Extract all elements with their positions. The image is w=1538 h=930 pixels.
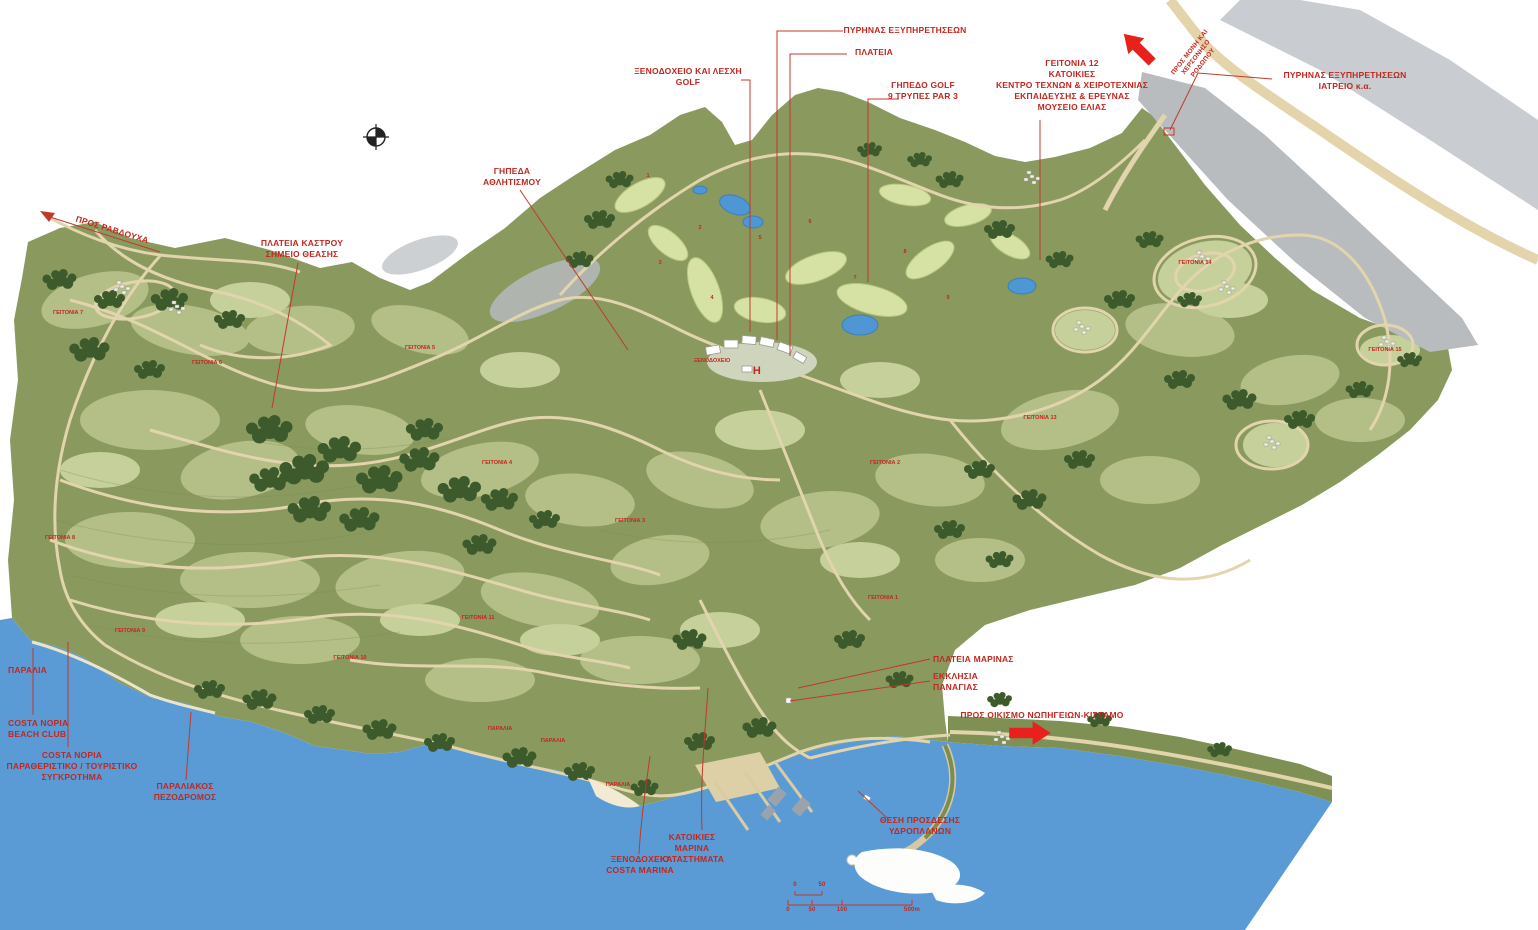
golf-hole-6: 6 bbox=[808, 219, 811, 226]
label-geitonia-3: ΓΕΙΤΟΝΙΑ 3 bbox=[615, 518, 645, 525]
label-geitonia-7: ΓΕΙΤΟΝΙΑ 7 bbox=[53, 310, 83, 317]
scale-upper-0: 0 bbox=[793, 882, 797, 890]
label-paralia-west: ΠΑΡΑΛΙΑ bbox=[8, 665, 47, 676]
masterplan-map: ΠΡΟΣ ΡΑΒΔΟΥΧΑ ΠΛΑΤΕΙΑ ΚΑΣΤΡΟΥ ΣΗΜΕΙΟ ΘΕΑ… bbox=[0, 0, 1538, 930]
label-thesi-prosdesis: ΘΕΣΗ ΠΡΟΣΔΕΣΗΣ ΥΔΡΟΠΛΑΝΩΝ bbox=[880, 815, 960, 837]
label-gipedo-golf-9: ΓΗΠΕΔΟ GOLF 9 ΤΡΥΠΕΣ PAR 3 bbox=[888, 80, 958, 102]
map-svg bbox=[0, 0, 1538, 930]
scale-lower-50: 50 bbox=[808, 907, 815, 915]
scale-lower-0: 0 bbox=[786, 907, 790, 915]
label-geitonia-13: ΓΕΙΤΟΝΙΑ 13 bbox=[1023, 415, 1056, 422]
label-hotel-central: ΞΕΝΟΔΟΧΕΙΟ bbox=[694, 358, 731, 365]
label-geitonia-2: ΓΕΙΤΟΝΙΑ 2 bbox=[870, 460, 900, 467]
label-geitonia-4: ΓΕΙΤΟΝΙΑ 4 bbox=[482, 460, 512, 467]
label-paralia-1: ΠΑΡΑΛΙΑ bbox=[488, 726, 512, 733]
label-geitonia-8: ΓΕΙΤΟΝΙΑ 8 bbox=[45, 535, 75, 542]
label-geitonia-15: ΓΕΙΤΟΝΙΑ 15 bbox=[1368, 347, 1401, 354]
golf-hole-9: 9 bbox=[946, 295, 949, 302]
golf-hole-5: 5 bbox=[758, 235, 761, 242]
label-xenodoxeio-costa-marina: ΞΕΝΟΔΟΧΕΙΟ COSTA MARINA bbox=[606, 854, 674, 876]
label-pyrinas-iatreio: ΠΥΡΗΝΑΣ ΕΞΥΠΗΡΕΤΗΣΕΩΝ ΙΑΤΡΕΙΟ κ.α. bbox=[1283, 70, 1406, 92]
helipad-marker: H bbox=[753, 364, 761, 378]
label-costa-beach-club: COSTA NOPIA BEACH CLUB bbox=[8, 718, 68, 740]
label-geitonia-12-block: ΓΕΙΤΟΝΙΑ 12 ΚΑΤΟΙΚΙΕΣ ΚΕΝΤΡΟ ΤΕΧΝΩΝ & ΧΕ… bbox=[996, 58, 1148, 113]
label-plateia-marinas: ΠΛΑΤΕΙΑ ΜΑΡΙΝΑΣ bbox=[933, 654, 1014, 665]
label-geitonia-10: ΓΕΙΤΟΝΙΑ 10 bbox=[333, 655, 366, 662]
label-plateia: ΠΛΑΤΕΙΑ bbox=[855, 47, 893, 58]
label-pros-oikismo: ΠΡΟΣ ΟΙΚΙΣΜΟ ΝΩΠΗΓΕΙΩΝ-ΚΙΣΣΑΜΟ bbox=[960, 710, 1123, 721]
label-pyrinas-exypiretiseon: ΠΥΡΗΝΑΣ ΕΞΥΠΗΡΕΤΗΣΕΩΝ bbox=[843, 25, 966, 36]
label-ekklisia-panagias: ΕΚΚΛΗΣΙΑ ΠΑΝΑΓΙΑΣ bbox=[933, 671, 978, 693]
label-paralia-2: ΠΑΡΑΛΙΑ bbox=[541, 738, 565, 745]
scale-upper-50: 50 bbox=[818, 882, 825, 890]
label-costa-sygkrotima: COSTA NOPIA ΠΑΡΑΘΕΡΙΣΤΙΚΟ / ΤΟΥΡΙΣΤΙΚΟ Σ… bbox=[7, 750, 138, 783]
label-geitonia-9: ΓΕΙΤΟΝΙΑ 9 bbox=[115, 628, 145, 635]
label-gipeda-athlitismou: ΓΗΠΕΔΑ ΑΘΛΗΤΙΣΜΟΥ bbox=[483, 166, 541, 188]
label-plateia-kastrou: ΠΛΑΤΕΙΑ ΚΑΣΤΡΟΥ ΣΗΜΕΙΟ ΘΕΑΣΗΣ bbox=[261, 238, 343, 260]
label-paraliakos-pezodromos: ΠΑΡΑΛΙΑΚΟΣ ΠΕΖΟΔΡΟΜΟΣ bbox=[154, 781, 217, 803]
label-paralia-3: ΠΑΡΑΛΙΑ bbox=[606, 782, 630, 789]
golf-hole-1: 1 bbox=[646, 173, 649, 180]
label-geitonia-14: ΓΕΙΤΟΝΙΑ 14 bbox=[1178, 260, 1211, 267]
label-geitonia-11: ΓΕΙΤΟΝΙΑ 11 bbox=[462, 615, 495, 622]
label-xenodoxeio-lesxi-golf: ΞΕΝΟΔΟΧΕΙΟ ΚΑΙ ΛΕΣΧΗ GOLF bbox=[634, 66, 742, 88]
golf-hole-8: 8 bbox=[903, 249, 906, 256]
label-geitonia-1: ΓΕΙΤΟΝΙΑ 1 bbox=[868, 595, 898, 602]
golf-hole-2: 2 bbox=[698, 225, 701, 232]
golf-hole-4: 4 bbox=[710, 295, 713, 302]
golf-hole-7: 7 bbox=[853, 275, 856, 282]
label-geitonia-6: ΓΕΙΤΟΝΙΑ 6 bbox=[192, 360, 222, 367]
label-geitonia-5: ΓΕΙΤΟΝΙΑ 5 bbox=[405, 345, 435, 352]
scale-lower-500m: 500m bbox=[904, 907, 920, 915]
scale-lower-100: 100 bbox=[837, 907, 848, 915]
golf-hole-3: 3 bbox=[658, 260, 661, 267]
